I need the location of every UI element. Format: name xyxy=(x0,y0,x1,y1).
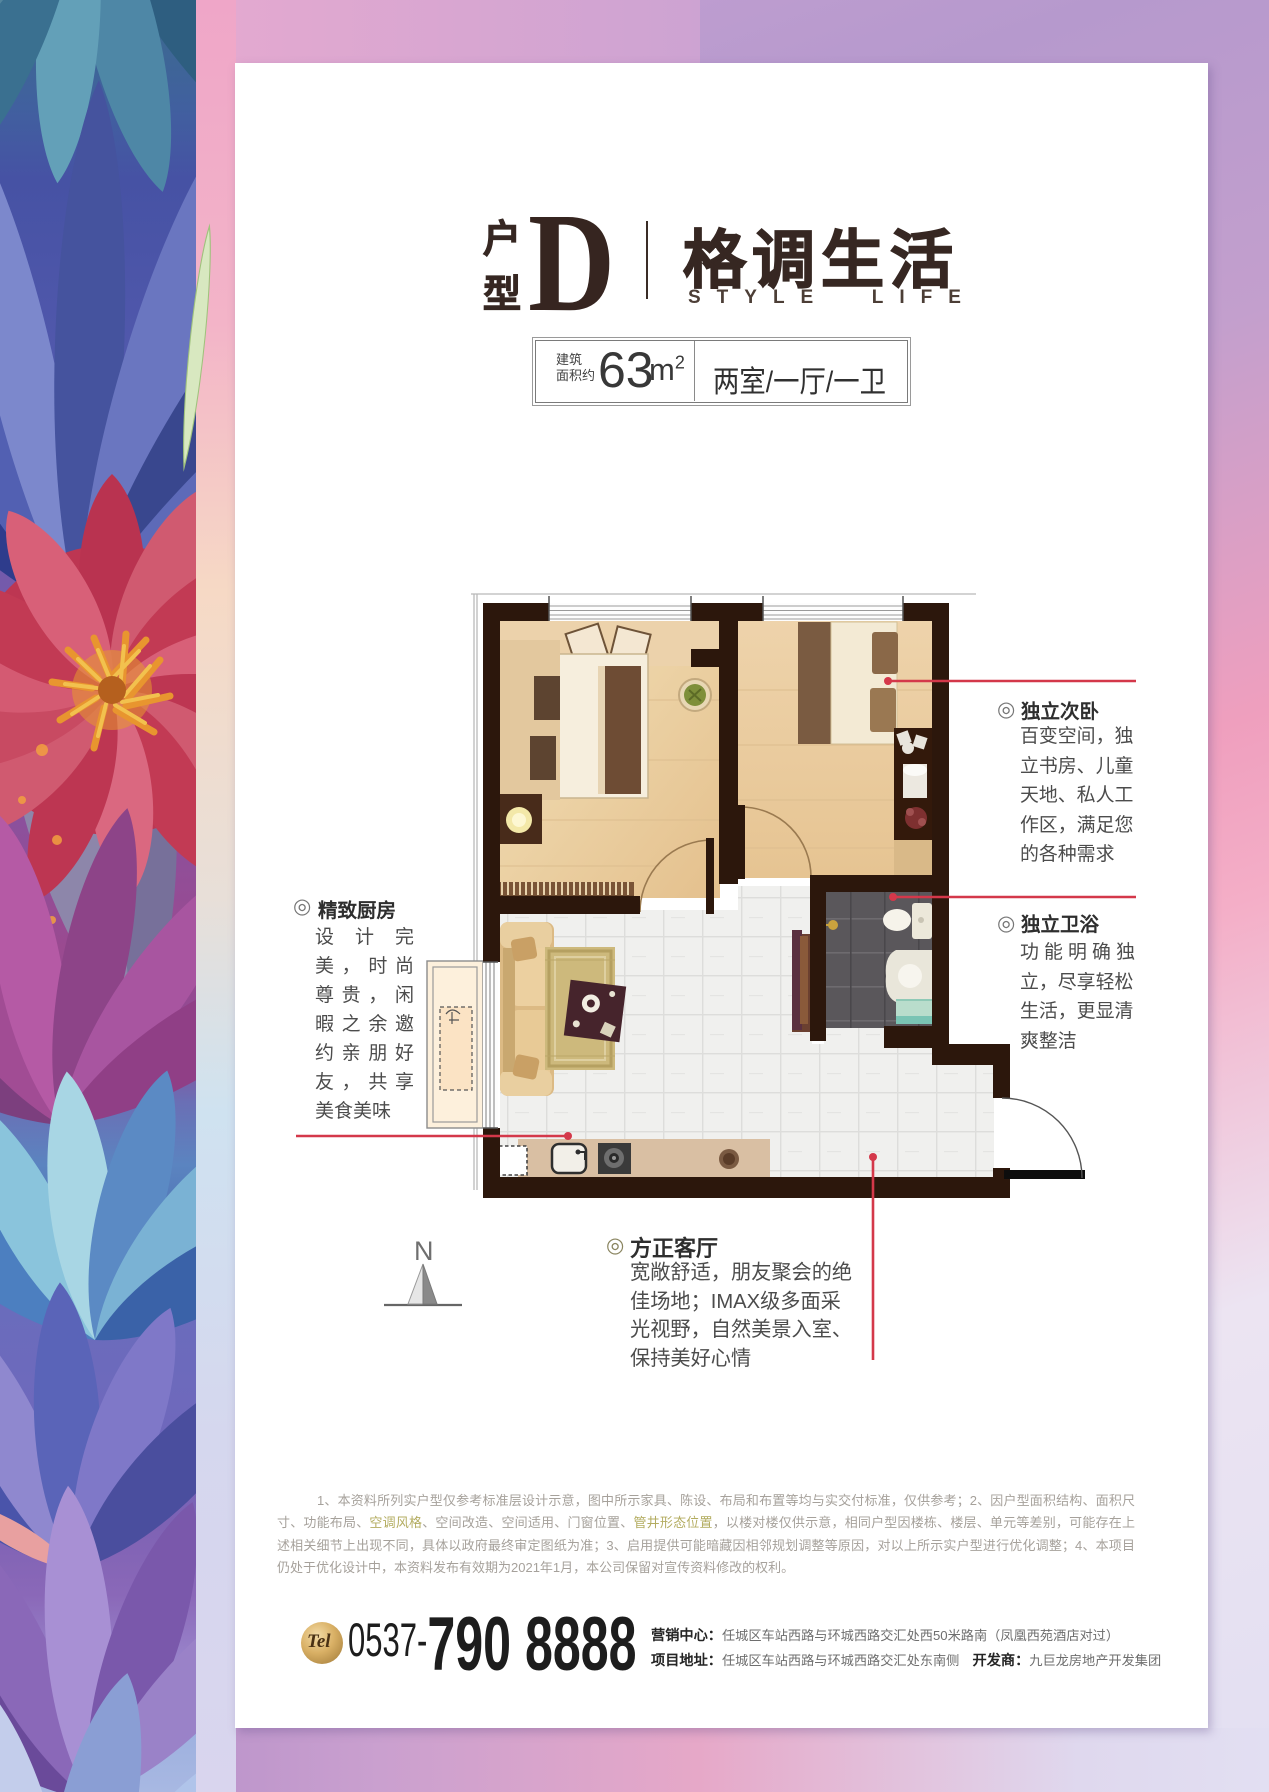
svg-text:N: N xyxy=(414,1236,434,1266)
